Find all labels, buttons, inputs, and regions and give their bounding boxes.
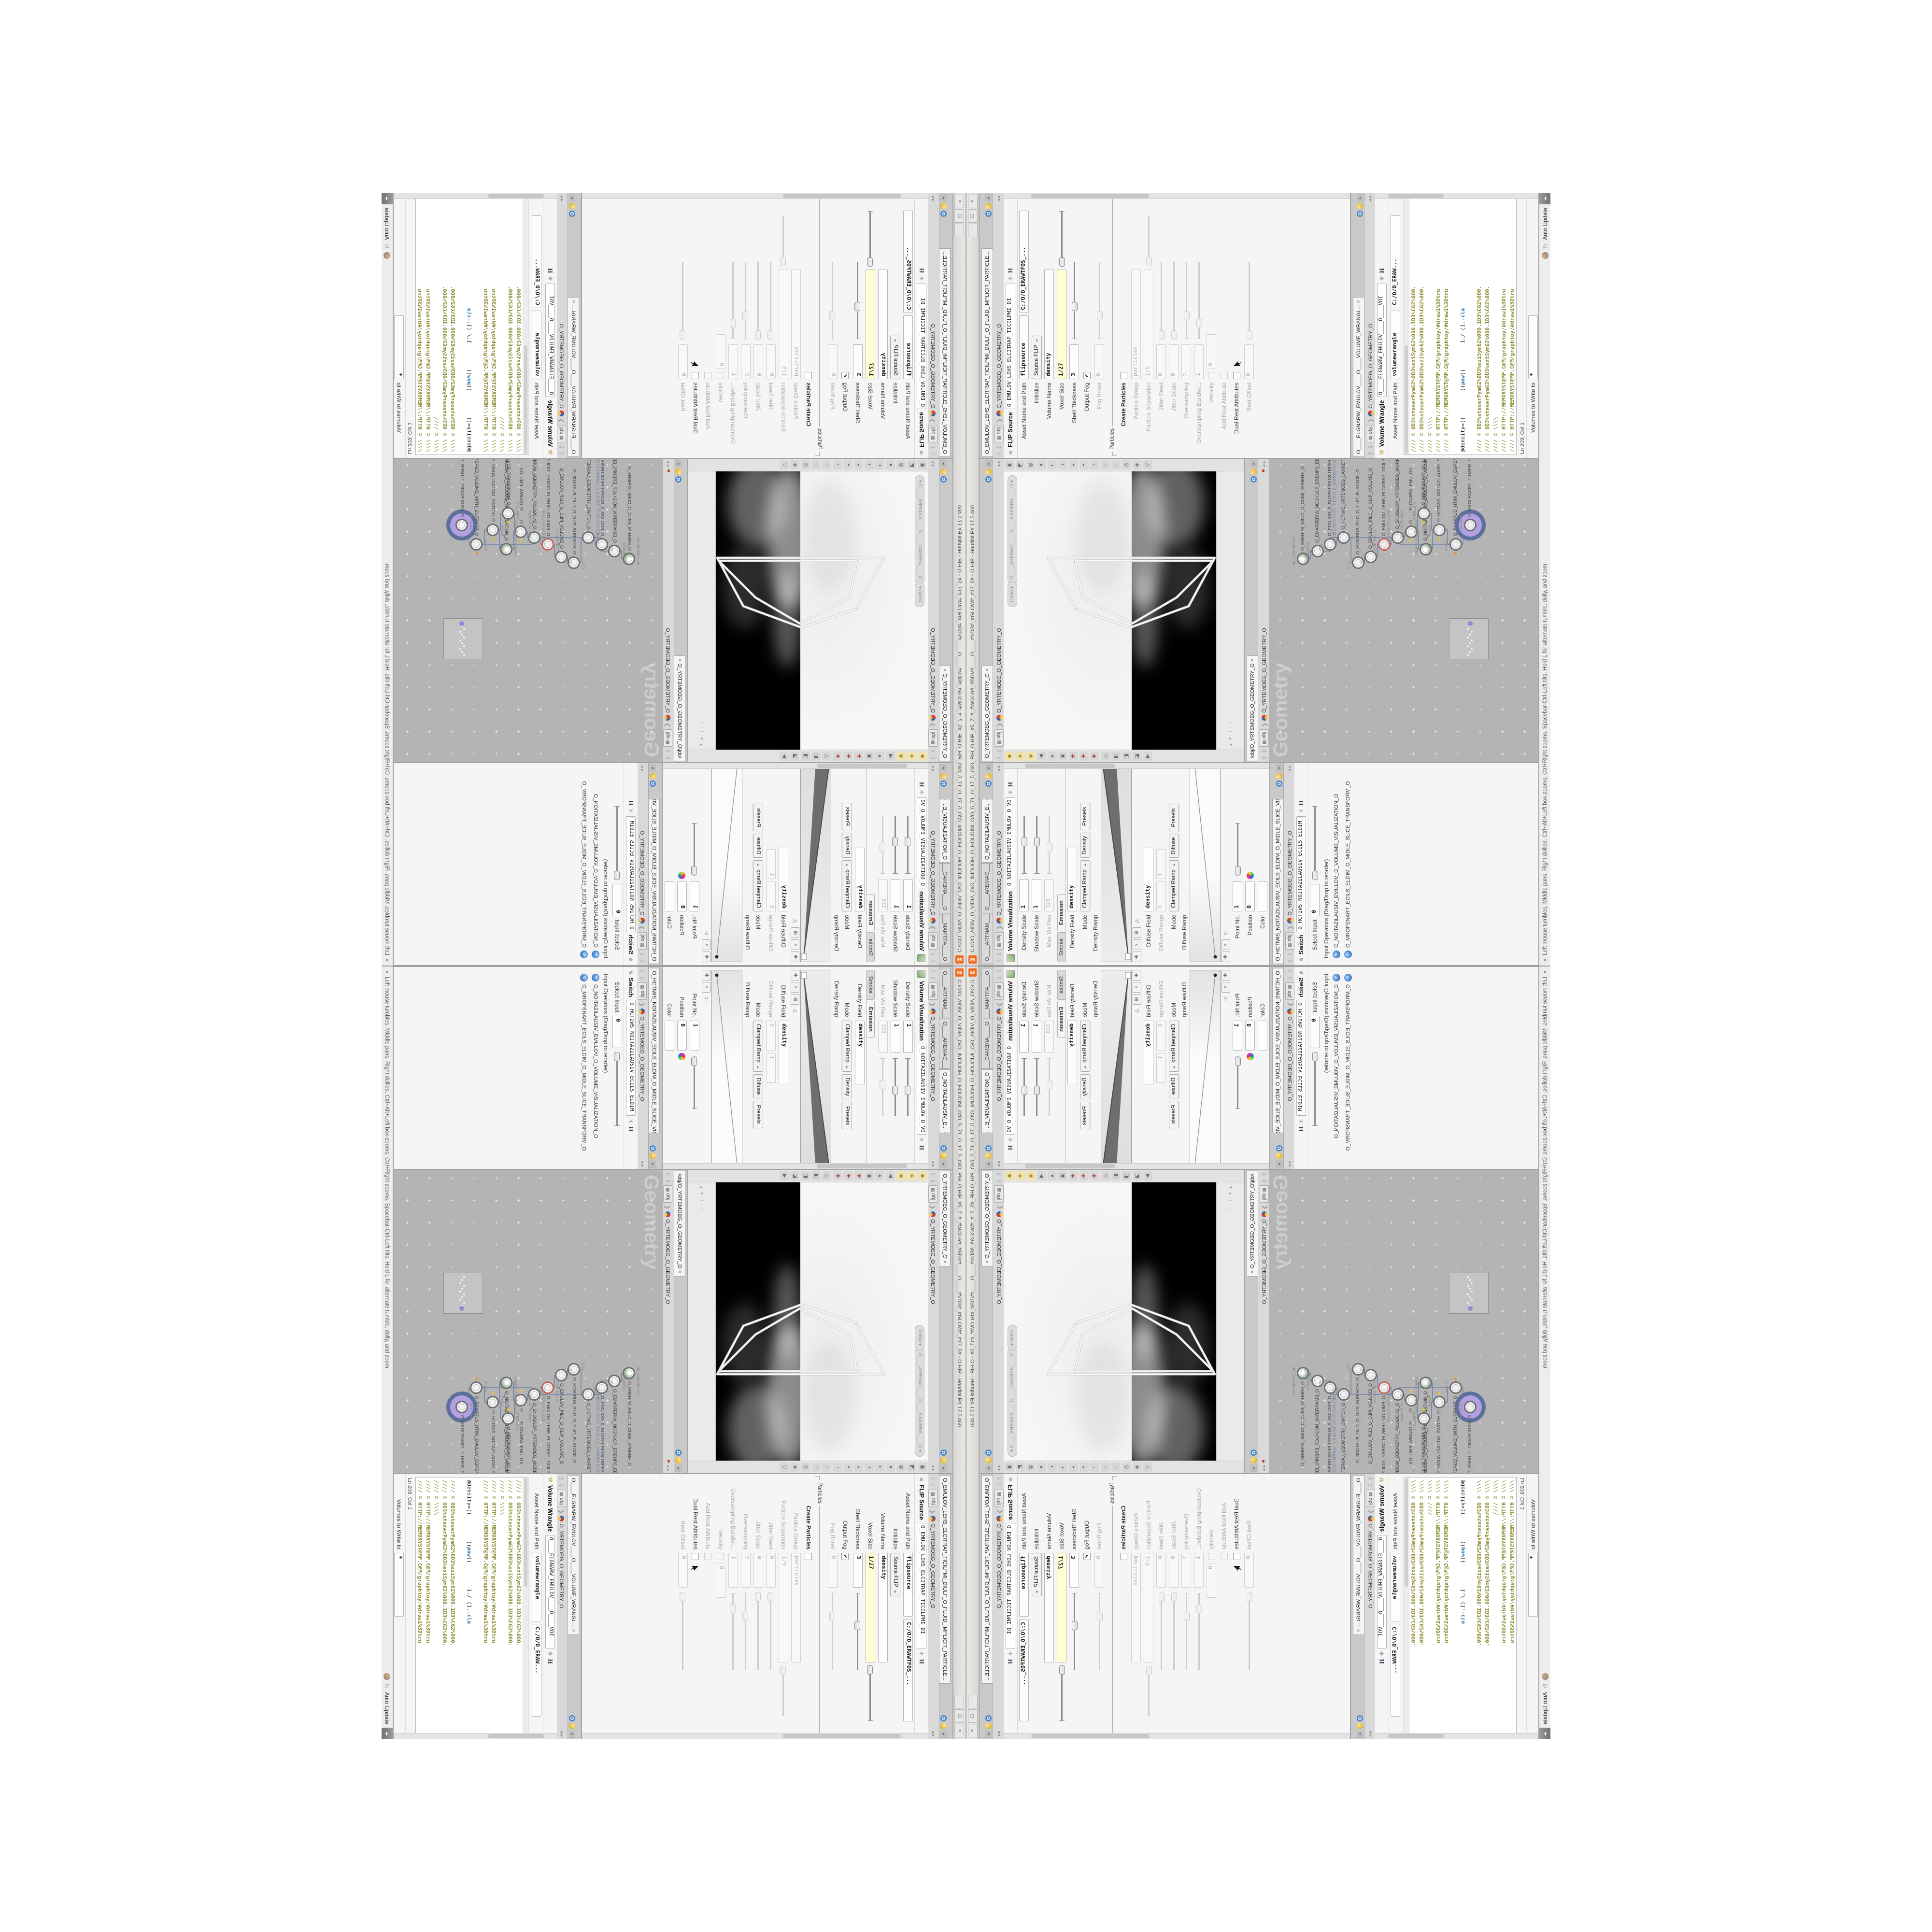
breadcrumb[interactable]: O_YRTEMOEG_O_GEOMETRY_O xyxy=(930,1523,936,1608)
gear-icon[interactable]: ✳ xyxy=(1007,790,1014,795)
network-minimap[interactable] xyxy=(1449,618,1489,659)
breadcrumb[interactable]: O_YRTEMOEG_O_GEOMETRY_O xyxy=(559,1523,565,1608)
presets-button-2[interactable]: Presets xyxy=(1169,804,1179,831)
toolbar-icon[interactable]: ◒ xyxy=(854,460,863,469)
memory-icon[interactable] xyxy=(1542,252,1548,259)
ortho-pill[interactable]: Ortho ▾ xyxy=(915,582,924,607)
network-node[interactable]: TransformO_MROFSNART_ECILS_ELDIM_O_MIDLE… xyxy=(1418,507,1430,520)
forward-icon[interactable]: ⇩ xyxy=(1261,749,1268,753)
code-hscrollbar[interactable] xyxy=(1404,197,1409,455)
back-icon[interactable]: ⇧ xyxy=(930,1476,937,1481)
breadcrumb[interactable]: O_YRTEMOEG_O_GEOMETRY_O xyxy=(1368,1523,1374,1608)
scrollbar[interactable] xyxy=(663,763,928,769)
ramp-del-icon[interactable]: × xyxy=(702,982,710,993)
toolbar-icon[interactable]: ◒ xyxy=(1069,1463,1078,1472)
param-slider[interactable] xyxy=(770,1593,772,1670)
param-field[interactable]: 2 xyxy=(1181,1553,1191,1588)
tab-network[interactable]: /obj/O_YRTEMOEG_O_GEOMETRY_O× xyxy=(674,655,685,761)
viewport-left-toolbar[interactable]: ◆◈◉◀▲▣✚✚✚△◧◨◪▶ xyxy=(1004,1170,1244,1182)
pane-menu-icon[interactable]: ▸ xyxy=(1250,460,1257,467)
toolbar-icon[interactable]: ▲ xyxy=(875,1171,884,1180)
param-field[interactable]: 1/27 xyxy=(1057,1553,1066,1662)
pin-icon[interactable] xyxy=(985,773,992,779)
link-icon[interactable] xyxy=(1276,781,1282,787)
param-menu[interactable]: Source FLIP◂▸ xyxy=(891,336,901,379)
link-icon[interactable] xyxy=(1250,476,1257,483)
toolbar-icon[interactable]: ◌ xyxy=(1111,1463,1121,1472)
toolbar-icon[interactable]: △ xyxy=(822,752,831,761)
node-name-field[interactable]: O____ELGNARW_EMULOV____O____VOI xyxy=(545,1535,555,1648)
param-slider[interactable] xyxy=(682,1593,684,1670)
network-node[interactable]: SwitchO_HCTIWS_NOITAZILAUSIV_ECILS_ELDIM… xyxy=(1433,524,1446,536)
param-field[interactable]: 1 xyxy=(690,881,699,911)
gear-icon[interactable]: ✳ xyxy=(918,1137,925,1142)
toolbar-icon[interactable]: ● xyxy=(1037,1463,1046,1472)
tab-smoke[interactable]: Smoke xyxy=(867,932,875,962)
param-field[interactable]: C:/O/O_ERAWTFOS_... xyxy=(1019,211,1029,313)
toolbar-icon[interactable]: ◪ xyxy=(1133,1171,1142,1180)
toolbar-icon[interactable]: ◔ xyxy=(833,1463,842,1472)
toolbar-icon[interactable]: ✚ xyxy=(843,752,852,761)
forward-icon[interactable]: ⇩ xyxy=(930,1179,937,1183)
gear-icon[interactable]: ✳ xyxy=(627,1119,634,1123)
code-hscrollbar[interactable] xyxy=(523,197,528,455)
breadcrumb[interactable]: O_YRTEMOEG_O_GEOMETRY_O xyxy=(1262,628,1267,713)
node-name-field[interactable]: O_HCTIWS_NOITAZILAUSIV_ECILS_ELDIM_O_ xyxy=(626,1000,636,1116)
tab-switch[interactable]: O_HCTIWS_NOITAZILAUSIV_ECILS_ELDIM_O_MID… xyxy=(649,799,660,964)
pane-menu-icon[interactable]: ▸ xyxy=(940,1161,947,1168)
toolbar-icon[interactable]: △ xyxy=(822,1171,831,1180)
ramp-del-icon[interactable]: × xyxy=(791,982,799,993)
reorder-icon[interactable]: ⟲ xyxy=(1344,974,1352,981)
pin-icon[interactable] xyxy=(985,1153,992,1159)
toolbar-icon[interactable]: ◍ xyxy=(896,460,906,469)
toolbar-icon[interactable]: ✚ xyxy=(1090,1171,1099,1180)
viewport-right-toolbar[interactable]: ▣◩◍●◐◑◒◓◔○◌◎◈▽ xyxy=(688,459,928,471)
ramp-del-icon[interactable]: × xyxy=(1222,982,1230,993)
back-icon[interactable]: ⇧ xyxy=(930,969,937,974)
param-slider[interactable] xyxy=(1237,1056,1238,1109)
param-field[interactable]: 1 xyxy=(1233,881,1242,911)
maximize-button[interactable]: □ xyxy=(968,1709,978,1723)
param-field[interactable]: particles xyxy=(791,1553,801,1662)
viewport-area[interactable]: ◆◈◉◀▲▣✚✚✚△◧◨◪▶ ▣◩◍●◐◑◒◓◔○◌◎◈▽ xyxy=(688,459,928,762)
param-checkbox[interactable] xyxy=(717,1553,724,1560)
minimize-button[interactable]: ─ xyxy=(968,224,978,237)
network-node[interactable]: MergeO_ECAFRUS_HTIW_EMULOV_EGREM_O_MERGE… xyxy=(470,1381,483,1394)
tab-switch[interactable]: O_HCTIWS_NOITAZILAUSIV_ECILS_ELDIM_O_MID… xyxy=(649,968,660,1133)
param-field[interactable]: particles xyxy=(1131,1553,1141,1662)
toolbar-icon[interactable]: ◈ xyxy=(907,752,916,761)
tab-mantra[interactable]: O____ARTNAM____O... xyxy=(981,968,993,1018)
pin-icon[interactable] xyxy=(650,1153,656,1159)
pane-menu-icon[interactable]: ▸ xyxy=(985,1731,992,1738)
obj-chip[interactable]: ▦obj xyxy=(638,982,647,1000)
color-wheel-icon[interactable] xyxy=(1247,872,1254,879)
density-field-input[interactable]: density xyxy=(1067,1021,1077,1084)
param-field[interactable]: 0 xyxy=(1310,1016,1320,1048)
toolbar-icon[interactable]: ▶ xyxy=(1143,752,1152,761)
pin-icon[interactable] xyxy=(985,203,992,209)
param-slider[interactable] xyxy=(733,262,734,339)
network-node[interactable]: TransformO_MROFSNART_TLUSER_O_RESULT_TRA… xyxy=(1464,519,1477,531)
toolbar-icon[interactable]: ● xyxy=(886,460,895,469)
forward-icon[interactable]: ⇩ xyxy=(930,976,937,980)
param-slider[interactable] xyxy=(1023,1058,1025,1116)
ortho-pill[interactable]: Ortho ▾ xyxy=(1008,582,1017,607)
param-checkbox[interactable]: ✔ xyxy=(842,1553,849,1560)
param-field[interactable]: 0 xyxy=(1245,881,1255,911)
param-slider[interactable] xyxy=(617,1053,618,1126)
param-field[interactable]: C:/O/O_ERAWTFOS_... xyxy=(903,211,913,313)
back-icon[interactable]: ⇧ xyxy=(996,451,1003,456)
toolbar-icon[interactable]: ◎ xyxy=(1122,460,1131,469)
breadcrumb[interactable]: O_YRTEMOEG_O_GEOMETRY_O xyxy=(930,324,936,409)
toolbar-icon[interactable]: ▽ xyxy=(1143,1463,1152,1472)
back-icon[interactable]: ⇧ xyxy=(930,451,937,456)
tab-smoke[interactable]: Smoke xyxy=(1057,970,1065,1000)
param-field[interactable]: * xyxy=(394,315,404,379)
param-checkbox[interactable] xyxy=(717,372,724,379)
camera-menu-pill[interactable]: O____AREMAC____O____CAMERA____O ▾ xyxy=(1008,1348,1017,1457)
toolbar-icon[interactable]: ▲ xyxy=(1048,1171,1057,1180)
toolbar-icon[interactable]: ◆ xyxy=(918,1171,927,1180)
tab-flip-source[interactable]: O_EMULOV_LEHS_ELCITRAP_TICILPMI_DIULF_O_… xyxy=(939,1475,951,1684)
pin-icon[interactable] xyxy=(985,469,992,475)
forward-icon[interactable]: ⇩ xyxy=(996,749,1003,753)
toolbar-icon[interactable]: △ xyxy=(1101,752,1110,761)
diffuse-field-input[interactable]: density xyxy=(1144,1021,1153,1084)
vex-code-editor[interactable]: //// © 0D3%steserPym62%0D3%eziSym62%000.… xyxy=(415,1477,528,1736)
tab-flip-source[interactable]: O_EMULOV_LEHS_ELCITRAP_TICILPMI_DIULF_O_… xyxy=(939,248,951,457)
toolbar-icon[interactable]: ◪ xyxy=(790,752,799,761)
param-slider[interactable] xyxy=(758,1593,759,1670)
network-node[interactable]: TransformO_MROFSNART_ECILS_ELDIM_O_MIDLE… xyxy=(1418,1412,1430,1425)
obj-chip[interactable]: ▦obj xyxy=(994,729,1004,747)
viewport-left-toolbar[interactable]: ◆◈◉◀▲▣✚✚✚△◧◨◪▶ xyxy=(688,1170,928,1182)
obj-chip[interactable]: ▦obj xyxy=(557,1490,566,1507)
ramp-del-icon[interactable]: × xyxy=(791,939,799,950)
param-field[interactable]: 3 xyxy=(1069,344,1079,379)
toolbar-icon[interactable]: ◀ xyxy=(886,752,895,761)
param-field[interactable]: 1 xyxy=(1032,1021,1041,1053)
obj-chip[interactable]: ▦obj xyxy=(994,932,1004,950)
pane-menu-icon[interactable]: ▸ xyxy=(985,460,992,467)
diffuse-ramp[interactable]: ✚×▷ xyxy=(1190,766,1230,962)
param-field[interactable]: 0 xyxy=(1207,334,1216,369)
viewport-left-toolbar[interactable]: ◆◈◉◀▲▣✚✚✚△◧◨◪▶ xyxy=(1004,750,1244,762)
breadcrumb[interactable]: O_YRTEMOEG_O_GEOMETRY_O xyxy=(930,831,936,916)
pin-icon[interactable] xyxy=(985,1723,992,1729)
param-field[interactable]: 0 xyxy=(766,344,776,379)
scrollbar[interactable] xyxy=(1375,193,1538,199)
param-field[interactable]: C:/O/O_ERAWTFOS_... xyxy=(903,1619,913,1721)
diffuse-field-input[interactable]: density xyxy=(1144,848,1153,911)
node-name-field[interactable]: O_HCTIWS_NOITAZILAUSIV_ECILS_ELDIM_O_ xyxy=(1296,1000,1306,1116)
param-checkbox[interactable] xyxy=(1120,372,1127,379)
param-field[interactable]: 1 xyxy=(690,1021,699,1051)
toolbar-icon[interactable]: ◨ xyxy=(1122,1171,1131,1180)
forward-icon[interactable]: ⇩ xyxy=(1261,1179,1268,1183)
scrollbar[interactable] xyxy=(1004,193,1350,199)
toolbar-icon[interactable]: ◌ xyxy=(1111,460,1121,469)
pane-menu-icon[interactable]: ▸ xyxy=(940,460,947,467)
toolbar-icon[interactable]: ◧ xyxy=(811,752,821,761)
param-slider[interactable] xyxy=(1249,262,1250,339)
density-field-input[interactable]: density xyxy=(855,1021,865,1084)
link-icon[interactable] xyxy=(940,476,947,483)
param-field[interactable]: 1 xyxy=(1233,1021,1242,1051)
param-field[interactable]: 1 xyxy=(903,879,913,911)
toolbar-icon[interactable]: ◑ xyxy=(1058,460,1067,469)
param-field[interactable]: 1/9 xyxy=(1144,1553,1153,1662)
switch-input-item[interactable]: ⟲O_MROFSNART_ECILS_ELDIM_O_MIDLE_SLICE_T… xyxy=(1342,763,1354,965)
viewport-render[interactable]: O____AREMAC____O____CAMERA____O ▾ Ortho … xyxy=(716,1182,928,1461)
forward-icon[interactable]: ⇩ xyxy=(665,1179,671,1183)
gear-icon[interactable]: ✳ xyxy=(1007,276,1014,281)
param-checkbox[interactable] xyxy=(1233,1553,1240,1560)
breadcrumb[interactable]: O_YRTEMOEG_O_GEOMETRY_O xyxy=(996,831,1002,916)
param-field[interactable]: 0 xyxy=(678,344,688,379)
ramp-target-menu[interactable]: Density xyxy=(842,833,852,858)
forward-icon[interactable]: ⇩ xyxy=(1287,976,1293,980)
network-canvas-wrap[interactable]: ++++++++++++++++++++++++++++++++++++++++… xyxy=(394,1170,663,1473)
color-wheel-icon[interactable] xyxy=(679,872,686,879)
param-field[interactable]: particles xyxy=(1131,270,1141,379)
toolbar-icon[interactable]: ◀ xyxy=(1037,1171,1046,1180)
toolbar-icon[interactable]: ◩ xyxy=(1016,1463,1025,1472)
toolbar-icon[interactable]: ◓ xyxy=(1080,1463,1089,1472)
viewport-area[interactable]: ◆◈◉◀▲▣✚✚✚△◧◨◪▶ ▣◩◍●◐◑◒◓◔○◌◎◈▽ xyxy=(1004,459,1244,762)
param-field[interactable]: 0 xyxy=(716,334,725,369)
toolbar-icon[interactable]: ◩ xyxy=(907,460,916,469)
minimize-button[interactable]: ─ xyxy=(955,1695,965,1708)
forward-icon[interactable]: ⇩ xyxy=(639,976,646,980)
obj-chip[interactable]: ▦obj xyxy=(1285,982,1294,1000)
viewport-render[interactable]: O____AREMAC____O____CAMERA____O ▾ Ortho … xyxy=(716,471,928,750)
camera-menu-pill[interactable]: O____AREMAC____O____CAMERA____O ▾ xyxy=(915,475,924,584)
param-field[interactable]: 1 xyxy=(903,1021,913,1053)
toolbar-icon[interactable]: ◑ xyxy=(865,1463,874,1472)
tab-scene-view[interactable]: O_YRTEMOEG_O_GEOMETRY_O× xyxy=(939,1171,951,1266)
param-field[interactable]: 0 xyxy=(716,1563,725,1598)
param-field[interactable]: density xyxy=(878,1553,888,1662)
diffuse-field-input[interactable]: density xyxy=(779,848,788,911)
toolbar-icon[interactable]: ▣ xyxy=(1058,1171,1067,1180)
close-button[interactable]: × xyxy=(955,1724,965,1737)
forward-icon[interactable]: ⇩ xyxy=(665,749,671,753)
ramp-target-menu[interactable]: Density xyxy=(1080,1074,1090,1099)
param-checkbox[interactable]: ✔ xyxy=(1083,1553,1091,1560)
param-slider[interactable] xyxy=(1148,216,1150,264)
mode-menu-2[interactable]: Clamped Ramp◂▸ xyxy=(1169,1021,1179,1072)
close-button[interactable]: × xyxy=(968,1724,978,1737)
tab-emission[interactable]: Emission xyxy=(1057,1001,1065,1038)
node-name-field[interactable]: O_NOITAZILAUSIV_EMULOV_O_VO xyxy=(917,797,926,888)
pane-menu-icon[interactable]: ▸ xyxy=(940,1465,947,1472)
pane-menu-icon[interactable]: ▸ xyxy=(675,1465,682,1472)
param-field[interactable]: 0 xyxy=(1207,1563,1216,1598)
back-icon[interactable]: ⇧ xyxy=(996,969,1003,974)
param-checkbox[interactable] xyxy=(705,1553,712,1560)
gear-icon[interactable]: ✳ xyxy=(918,1651,925,1656)
back-icon[interactable]: ⇧ xyxy=(639,969,646,974)
tab-emission[interactable]: Emission xyxy=(1057,894,1065,931)
toolbar-icon[interactable]: ◔ xyxy=(833,460,842,469)
param-checkbox[interactable] xyxy=(1221,372,1228,379)
pin-icon[interactable] xyxy=(985,1457,992,1463)
mode-menu[interactable]: Clamped Ramp◂▸ xyxy=(842,1021,852,1072)
param-slider[interactable] xyxy=(1099,1593,1100,1670)
breadcrumb[interactable]: O_YRTEMOEG_O_GEOMETRY_O xyxy=(559,324,565,409)
breadcrumb[interactable]: O_YRTEMOEG_O_GEOMETRY_O xyxy=(665,1219,671,1304)
link-icon[interactable] xyxy=(1250,1449,1257,1456)
obj-chip[interactable]: ▦obj xyxy=(928,729,938,747)
param-slider[interactable] xyxy=(682,262,684,339)
param-slider[interactable] xyxy=(758,262,759,339)
presets-button-2[interactable]: Presets xyxy=(753,1101,764,1128)
tab-camera[interactable]: O____AREMAC____O... xyxy=(939,1019,951,1069)
maximize-button[interactable]: □ xyxy=(968,209,978,223)
code-hscrollbar[interactable] xyxy=(1404,1477,1409,1735)
param-checkbox[interactable] xyxy=(692,372,699,379)
pin-icon[interactable] xyxy=(940,1457,947,1463)
param-field[interactable]: 0 xyxy=(1094,344,1104,379)
scrollbar[interactable] xyxy=(663,1163,928,1169)
pane-menu-icon[interactable]: ▸ xyxy=(985,194,992,201)
toolbar-icon[interactable]: ▽ xyxy=(1143,460,1152,469)
obj-chip[interactable]: ▦obj xyxy=(928,1490,938,1507)
node-name-field[interactable]: O_EMULOV_LEHS_ELCITRAP_TICILPMI_DI xyxy=(917,284,926,409)
tab-volviz[interactable]: O_NOITAZILAUSIV_E...× xyxy=(981,799,993,863)
toolbar-icon[interactable]: ○ xyxy=(822,1463,831,1472)
toolbar-icon[interactable]: ▲ xyxy=(875,752,884,761)
param-slider[interactable] xyxy=(770,262,772,339)
link-icon[interactable] xyxy=(675,476,682,483)
toolbar-icon[interactable]: ▽ xyxy=(780,460,789,469)
link-icon[interactable] xyxy=(940,1145,947,1151)
param-slider[interactable] xyxy=(1023,816,1025,874)
param-field[interactable]: 0 xyxy=(1156,344,1166,379)
param-field[interactable]: 0 xyxy=(828,344,838,379)
pin-icon[interactable] xyxy=(569,1723,575,1729)
pin-icon[interactable] xyxy=(940,1723,947,1729)
param-field[interactable]: 1 xyxy=(728,1553,738,1588)
ramp-edit-icon[interactable]: ⊞ xyxy=(791,994,799,1005)
pane-menu-icon[interactable]: ▸ xyxy=(569,194,575,201)
viewport-area[interactable]: ◆◈◉◀▲▣✚✚✚△◧◨◪▶ ▣◩◍●◐◑◒◓◔○◌◎◈▽ xyxy=(1004,1170,1244,1473)
gear-icon[interactable]: ✳ xyxy=(547,276,554,281)
param-field[interactable]: * xyxy=(394,1553,404,1617)
pin-icon[interactable] xyxy=(1276,1153,1282,1159)
minimize-button[interactable]: ─ xyxy=(968,1695,978,1708)
memory-icon[interactable] xyxy=(384,1673,390,1680)
forward-icon[interactable]: ⇩ xyxy=(996,976,1003,980)
param-field[interactable]: flipsource xyxy=(1019,1553,1029,1617)
reorder-icon[interactable]: ⟲ xyxy=(592,951,599,958)
param-field[interactable]: 1/27 xyxy=(1057,270,1066,379)
param-field[interactable]: 3 xyxy=(1069,1553,1079,1588)
obj-chip[interactable]: ▦obj xyxy=(994,1185,1004,1203)
param-field[interactable]: 0 xyxy=(612,1016,622,1048)
node-name-field[interactable]: O_NOITAZILAUSIV_EMULOV_O_VO xyxy=(1006,797,1015,888)
param-slider[interactable] xyxy=(870,211,871,264)
update-mode-selector[interactable]: Auto Update xyxy=(384,1692,390,1724)
toolbar-icon[interactable]: ◐ xyxy=(875,460,884,469)
network-node[interactable]: TransformO_MROFSNART_TLUSER_O_RESULT_TRA… xyxy=(455,1401,468,1413)
toolbar-icon[interactable]: ● xyxy=(886,1463,895,1472)
tab-camera[interactable]: O____AREMAC____O... xyxy=(981,1019,993,1069)
switch-input-item[interactable]: ⟲O_MROFSNART_ECILS_ELDIM_O_MIDLE_SLICE_T… xyxy=(578,967,590,1169)
breadcrumb[interactable]: O_YRTEMOEG_O_GEOMETRY_O xyxy=(1262,1219,1267,1304)
corner-resize-button[interactable]: ◂▸ xyxy=(1539,1728,1551,1739)
forward-icon[interactable]: ⇩ xyxy=(558,444,565,449)
tab-volviz[interactable]: O_NOITAZILAUSIV_E...× xyxy=(939,799,951,863)
toolbar-icon[interactable]: ◉ xyxy=(1026,1171,1036,1180)
breadcrumb[interactable]: O_YRTEMOEG_O_GEOMETRY_O xyxy=(996,324,1002,409)
toolbar-icon[interactable]: ◈ xyxy=(1133,460,1142,469)
tab-scene-view[interactable]: O_YRTEMOEG_O_GEOMETRY_O× xyxy=(981,666,993,761)
back-icon[interactable]: ⇧ xyxy=(1367,1476,1374,1481)
param-slider[interactable] xyxy=(1173,262,1175,339)
param-slider[interactable] xyxy=(745,262,747,339)
network-canvas[interactable]: ++++++++++++++++++++++++++++++++++++++++… xyxy=(394,459,663,762)
network-node[interactable]: MergeO_ECAFRUS_HTIW_EMULOV_EGREM_O_MERGE… xyxy=(470,538,483,551)
switch-input-item[interactable]: ⟲O_NOITAZILAUSIV_EMULOV_O_VOLUME_VISUALI… xyxy=(590,763,601,965)
link-icon[interactable] xyxy=(985,1715,992,1721)
param-field[interactable]: 1 xyxy=(891,879,900,911)
pane-menu-icon[interactable]: ▸ xyxy=(1357,1731,1363,1738)
mode-menu-2[interactable]: Clamped Ramp◂▸ xyxy=(753,1021,764,1072)
toolbar-icon[interactable]: ◈ xyxy=(1016,752,1025,761)
maximize-button[interactable]: □ xyxy=(955,1709,965,1723)
forward-icon[interactable]: ⇩ xyxy=(996,952,1003,956)
tab-network[interactable]: /obj/O_YRTEMOEG_O_GEOMETRY_O× xyxy=(1247,1171,1258,1277)
param-field[interactable]: 0 xyxy=(677,1021,687,1051)
link-icon[interactable] xyxy=(1357,211,1363,217)
param-field[interactable] xyxy=(665,1021,674,1051)
tab-emission[interactable]: Emission xyxy=(867,894,875,931)
param-field[interactable]: 2 xyxy=(741,344,751,379)
param-field[interactable]: 0 xyxy=(828,1553,838,1588)
param-field[interactable]: 0 xyxy=(1244,1553,1254,1588)
ortho-pill[interactable]: Ortho ▾ xyxy=(915,1325,924,1350)
param-slider[interactable] xyxy=(857,1593,859,1670)
toolbar-icon[interactable]: ◨ xyxy=(801,752,810,761)
gear-icon[interactable]: ✳ xyxy=(627,809,634,813)
param-field[interactable]: density xyxy=(878,270,888,379)
param-checkbox[interactable] xyxy=(805,372,812,379)
viewport-left-toolbar[interactable]: ◆◈◉◀▲▣✚✚✚△◧◨◪▶ xyxy=(688,750,928,762)
param-field[interactable]: flipsource xyxy=(1019,315,1029,379)
pane-menu-icon[interactable]: ▸ xyxy=(650,764,656,771)
forward-icon[interactable]: ⇩ xyxy=(930,749,937,753)
tab-smoke[interactable]: Smoke xyxy=(1057,932,1065,962)
ramp-add-icon[interactable]: ✚ xyxy=(1222,970,1230,980)
toolbar-icon[interactable]: ✚ xyxy=(1080,752,1089,761)
toolbar-icon[interactable]: ✚ xyxy=(854,752,863,761)
obj-chip[interactable]: ▦obj xyxy=(928,1185,938,1203)
ramp-target-menu-2[interactable]: Diffuse xyxy=(753,834,764,858)
param-field[interactable]: 0 xyxy=(612,884,622,916)
param-field[interactable]: 0 xyxy=(1245,1021,1255,1051)
network-minimap[interactable] xyxy=(1449,1273,1489,1314)
toolbar-icon[interactable]: ○ xyxy=(1101,1463,1110,1472)
network-node[interactable]: SwitchO_HCTIWS_YRTEMOEG_LANRETXE_LANRETN… xyxy=(1337,1388,1350,1401)
param-slider[interactable] xyxy=(1186,1593,1187,1670)
obj-chip[interactable]: ▦obj xyxy=(928,932,938,950)
mode-menu[interactable]: Clamped Ramp◂▸ xyxy=(1080,860,1090,911)
